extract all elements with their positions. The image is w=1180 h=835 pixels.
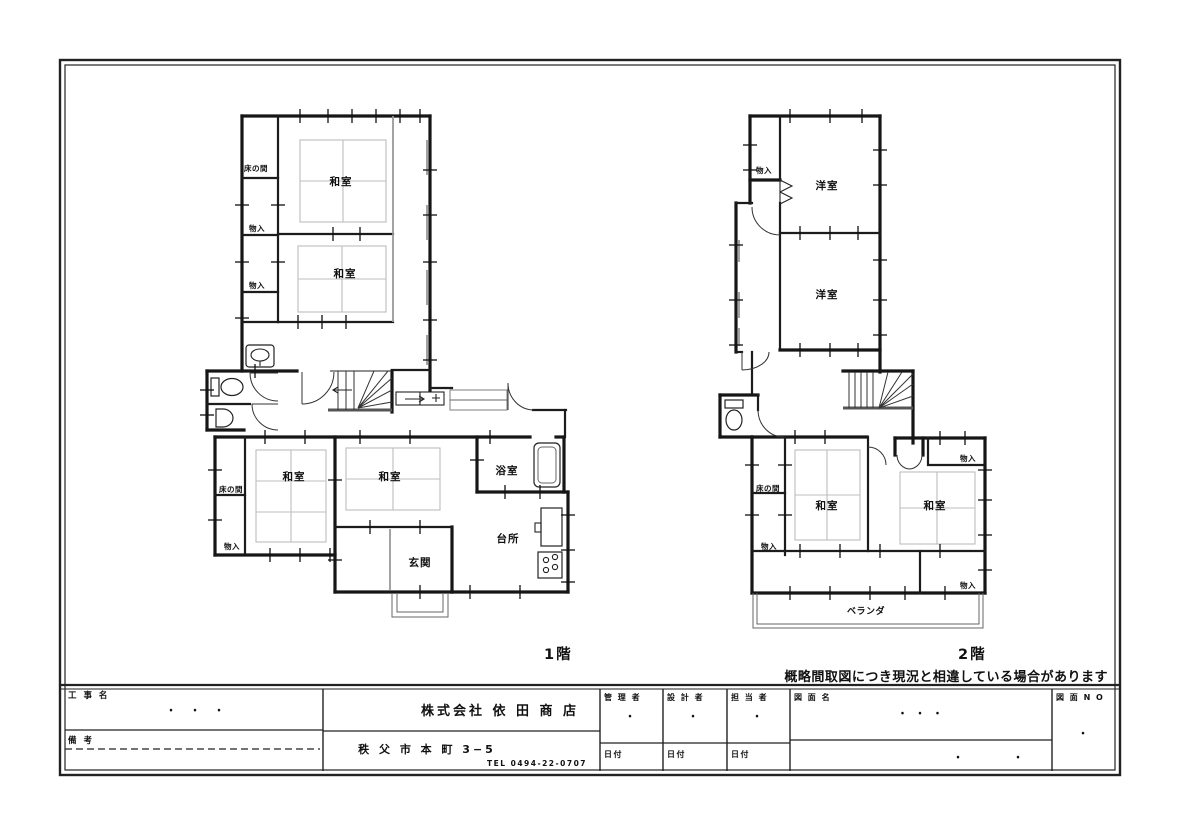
room-label-yoshitsu2: 洋室	[816, 288, 839, 301]
room-label-washitsu-1f-upper1: 和室	[329, 175, 353, 188]
room-label-washitsu-2f-2: 和室	[923, 499, 947, 512]
company-name: 株式会社 依 田 商 店	[421, 703, 579, 719]
hall-cabinet	[396, 392, 444, 405]
washbasin-icon	[246, 345, 274, 367]
room-label-tokonoma-2f: 床の間	[756, 483, 780, 493]
toilet-icon	[211, 378, 243, 396]
stairs-1f	[330, 371, 392, 410]
company-address: 秩 父 市 本 町 3−5	[358, 742, 496, 756]
bifold-door-icon	[780, 180, 792, 204]
room-label-genkan: 玄関	[409, 556, 432, 569]
room-label-washitsu-1f-lower1: 和室	[282, 470, 306, 483]
room-label-tokonoma-1f-lower: 床の間	[219, 484, 243, 494]
kitchen-sink-icon	[535, 508, 562, 546]
person-in-charge-value: ・	[752, 712, 764, 723]
remarks-label: 備 考	[68, 735, 94, 746]
floor1-caption: 1階	[544, 645, 573, 663]
project-name-label: 工 事 名	[68, 690, 109, 701]
person-in-charge-label: 担 当 者	[731, 692, 768, 702]
room-label-yokushitsu: 浴室	[496, 464, 519, 477]
manager-value: ・	[625, 712, 637, 723]
bathtub-icon	[534, 443, 560, 487]
person-date-label: 日付	[731, 749, 750, 759]
room-label-washitsu-2f-1: 和室	[815, 499, 839, 512]
room-label-yoshitsu1: 洋室	[816, 179, 839, 192]
company-phone: TEL 0494-22-0707	[487, 759, 587, 768]
designer-date-label: 日付	[667, 749, 686, 759]
room-label-monoire-1f-1: 物入	[249, 223, 265, 233]
disclaimer-note: 概略間取図につき現況と相違している場合があります	[784, 669, 1108, 685]
room-label-monoire-2f-right-top: 物入	[960, 453, 976, 463]
room-label-washitsu-1f-upper2: 和室	[333, 267, 357, 280]
room-label-monoire-2f-top: 物入	[756, 165, 772, 175]
designer-label: 設 計 者	[667, 692, 704, 702]
drawing-no-value: ・	[1078, 729, 1090, 740]
title-block-texts: 工 事 名 ・ ・ ・ 備 考 株式会社 依 田 商 店 秩 父 市 本 町 3…	[68, 690, 1104, 768]
room-label-washitsu-1f-lower2: 和室	[378, 470, 402, 483]
manager-date-label: 日付	[604, 749, 623, 759]
manager-label: 管 理 者	[604, 692, 641, 702]
room-label-monoire-1f-lower: 物入	[224, 541, 240, 551]
stove-icon	[538, 552, 562, 578]
floor1-plan: 床の間 物入 物入 和室 和室 床の間 物入 和室 和室 玄関 浴室 台所 1階	[200, 109, 575, 663]
drawing-no-label: 図 面 N O	[1056, 693, 1104, 702]
project-name-value: ・ ・ ・	[166, 706, 226, 717]
toilet-icon-2f	[725, 400, 743, 430]
room-label-monoire-1f-2: 物入	[249, 280, 265, 290]
floor2-door-arcs	[742, 207, 922, 469]
drawing-name-value: ・ ・ ・	[898, 709, 945, 720]
stairs-2f	[849, 372, 913, 408]
designer-value: ・	[688, 712, 700, 723]
drawing-name-value2: ・ ・	[953, 753, 1025, 764]
floor2-walls	[720, 116, 985, 593]
floorplan-sheet: 床の間 物入 物入 和室 和室 床の間 物入 和室 和室 玄関 浴室 台所 1階	[0, 0, 1180, 835]
drawing-name-label: 図 面 名	[794, 692, 831, 702]
room-label-monoire-2f-left: 物入	[761, 541, 777, 551]
room-label-monoire-2f-right-bottom: 物入	[960, 580, 976, 590]
title-block: 工 事 名 ・ ・ ・ 備 考 株式会社 依 田 商 店 秩 父 市 本 町 3…	[60, 685, 1120, 771]
room-label-veranda: ベランダ	[847, 605, 885, 617]
urinal-icon	[216, 409, 233, 427]
floor2-plan: 物入 洋室 洋室 床の間 物入 和室 和室 物入 物入 ベランダ 2階	[720, 109, 992, 663]
floor2-caption: 2階	[958, 645, 987, 663]
room-label-daidokoro: 台所	[497, 532, 520, 545]
room-label-tokonoma-1f-upper: 床の間	[244, 163, 268, 173]
